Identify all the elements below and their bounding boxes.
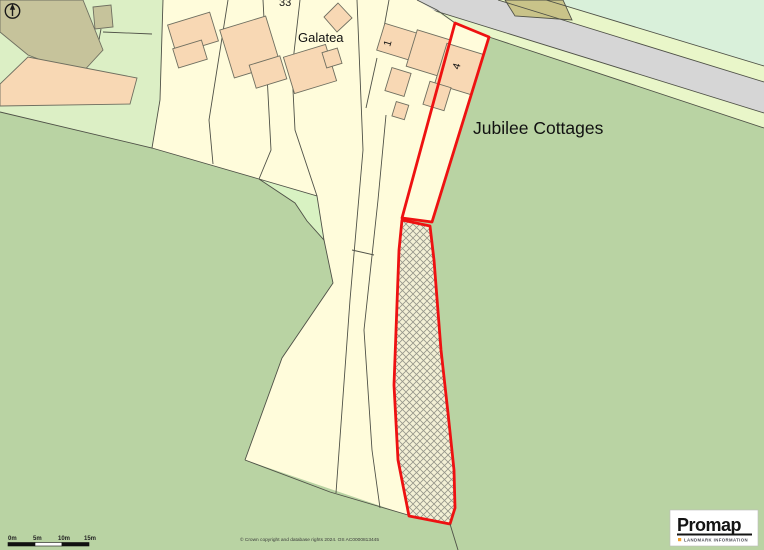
label-jubilee-cottages: Jubilee Cottages xyxy=(473,118,604,138)
scale-tick-10m: 10m xyxy=(58,536,70,542)
map-canvas[interactable]: 33 Galatea Jubilee Cottages 1 4 0m 5m 10… xyxy=(0,0,764,550)
scale-tick-15m: 15m xyxy=(84,536,96,542)
logo-brand-text: Promap xyxy=(677,515,742,535)
scale-tick-5m: 5m xyxy=(33,536,42,542)
label-galatea: Galatea xyxy=(298,30,344,45)
building-small-khaki xyxy=(93,5,113,29)
orange-marker xyxy=(678,538,681,541)
copyright-text: © Crown copyright and database rights 20… xyxy=(240,536,379,543)
logo-underline xyxy=(677,534,752,536)
landmark-tagline: LANDMARK INFORMATION xyxy=(684,538,748,543)
promap-logo: Promap LANDMARK INFORMATION xyxy=(670,510,758,546)
scale-tick-0m: 0m xyxy=(8,536,17,542)
label-33: 33 xyxy=(279,0,291,9)
